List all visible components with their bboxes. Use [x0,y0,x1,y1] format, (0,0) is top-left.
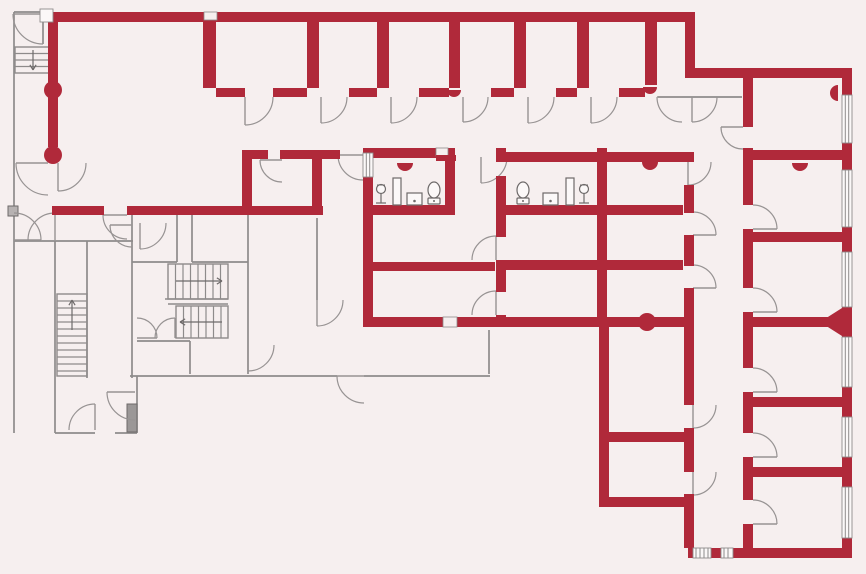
window [842,170,852,227]
door-threshold [8,206,18,216]
toilet-dot [522,200,524,202]
wall-segment [556,88,577,97]
wall-segment [577,22,589,88]
basin-bowl [377,185,386,194]
toilet-bowl [428,182,440,198]
wall-segment [216,88,245,97]
window-frame [721,548,733,558]
sink-basin [407,193,422,205]
wall-segment [273,88,307,97]
wall-opening-notch [204,12,217,20]
window [40,9,53,22]
wall-segment [599,497,693,507]
wall-segment [506,205,601,215]
elevator-shaft [127,404,137,432]
wall-segment [48,97,58,147]
window [842,252,852,307]
toilet-dot [433,200,435,202]
window [842,337,852,387]
cabinet-body [393,178,401,205]
wall-segment [203,22,216,88]
wall-segment [743,397,842,407]
wall-segment [48,12,695,22]
wall-segment [743,78,753,127]
wall-segment [280,150,340,159]
structural-column [638,313,656,331]
floor-plan [0,0,866,574]
wall-segment [491,88,514,97]
wall-segment [307,22,319,88]
window [721,548,733,558]
wall-segment [52,206,104,215]
wall-segment [599,432,693,442]
cabinet-fixture [393,178,401,205]
window [842,95,852,143]
sink-basin [543,193,558,205]
window-frame [40,9,53,22]
basin-bowl [580,185,589,194]
sink-fixture [543,193,558,205]
wall-segment [506,260,597,270]
wall-segment [242,157,252,209]
plan-background [0,0,866,574]
wall-opening-notch [436,148,448,156]
wall-segment [363,205,455,215]
wall-segment [645,22,657,85]
window [842,417,852,457]
wall-segment [363,262,495,271]
toilet-bowl [517,182,529,198]
sink-drain [413,200,416,203]
cabinet-body [566,178,574,205]
wall-segment [619,88,645,97]
wall-segment [496,148,506,162]
toilet-fixture [428,182,440,204]
wall-segment [496,260,506,292]
wall-segment [607,260,683,270]
wall-segment [599,325,609,507]
wall-segment [743,150,842,160]
wall-segment [684,235,694,266]
wall-segment [743,467,842,477]
wall-patch [436,155,456,161]
wall-segment [48,22,58,84]
window-frame [842,337,852,387]
wall-segment [743,457,753,500]
wall-segment [496,176,506,237]
wall-segment [743,524,753,548]
window-frame [842,252,852,307]
window-frame [842,95,852,143]
wall-segment [419,88,449,97]
wall-segment [597,148,607,327]
wall-segment [607,205,683,215]
wall-segment [127,206,323,215]
wall-segment [514,22,526,88]
wall-segment [684,185,694,213]
wall-segment [377,22,389,88]
wall-opening-notch [443,317,457,327]
floor-plan-canvas [0,0,866,574]
structural-column [44,81,62,99]
wall-segment [695,68,852,78]
window [693,548,711,558]
window [842,487,852,538]
wall-segment [743,232,842,242]
window-frame [363,153,373,177]
wall-segment [684,288,694,405]
wall-segment [449,22,460,88]
wall-segment [312,150,322,215]
wall-segment [349,88,377,97]
structural-column [44,146,62,164]
toilet-fixture [517,182,529,204]
window-frame [842,417,852,457]
wall-segment [688,548,852,558]
window-frame [842,170,852,227]
window [363,153,373,177]
sink-fixture [407,193,422,205]
sink-drain [549,200,552,203]
cabinet-fixture [566,178,574,205]
wall-segment [685,12,695,78]
window-frame [842,487,852,538]
